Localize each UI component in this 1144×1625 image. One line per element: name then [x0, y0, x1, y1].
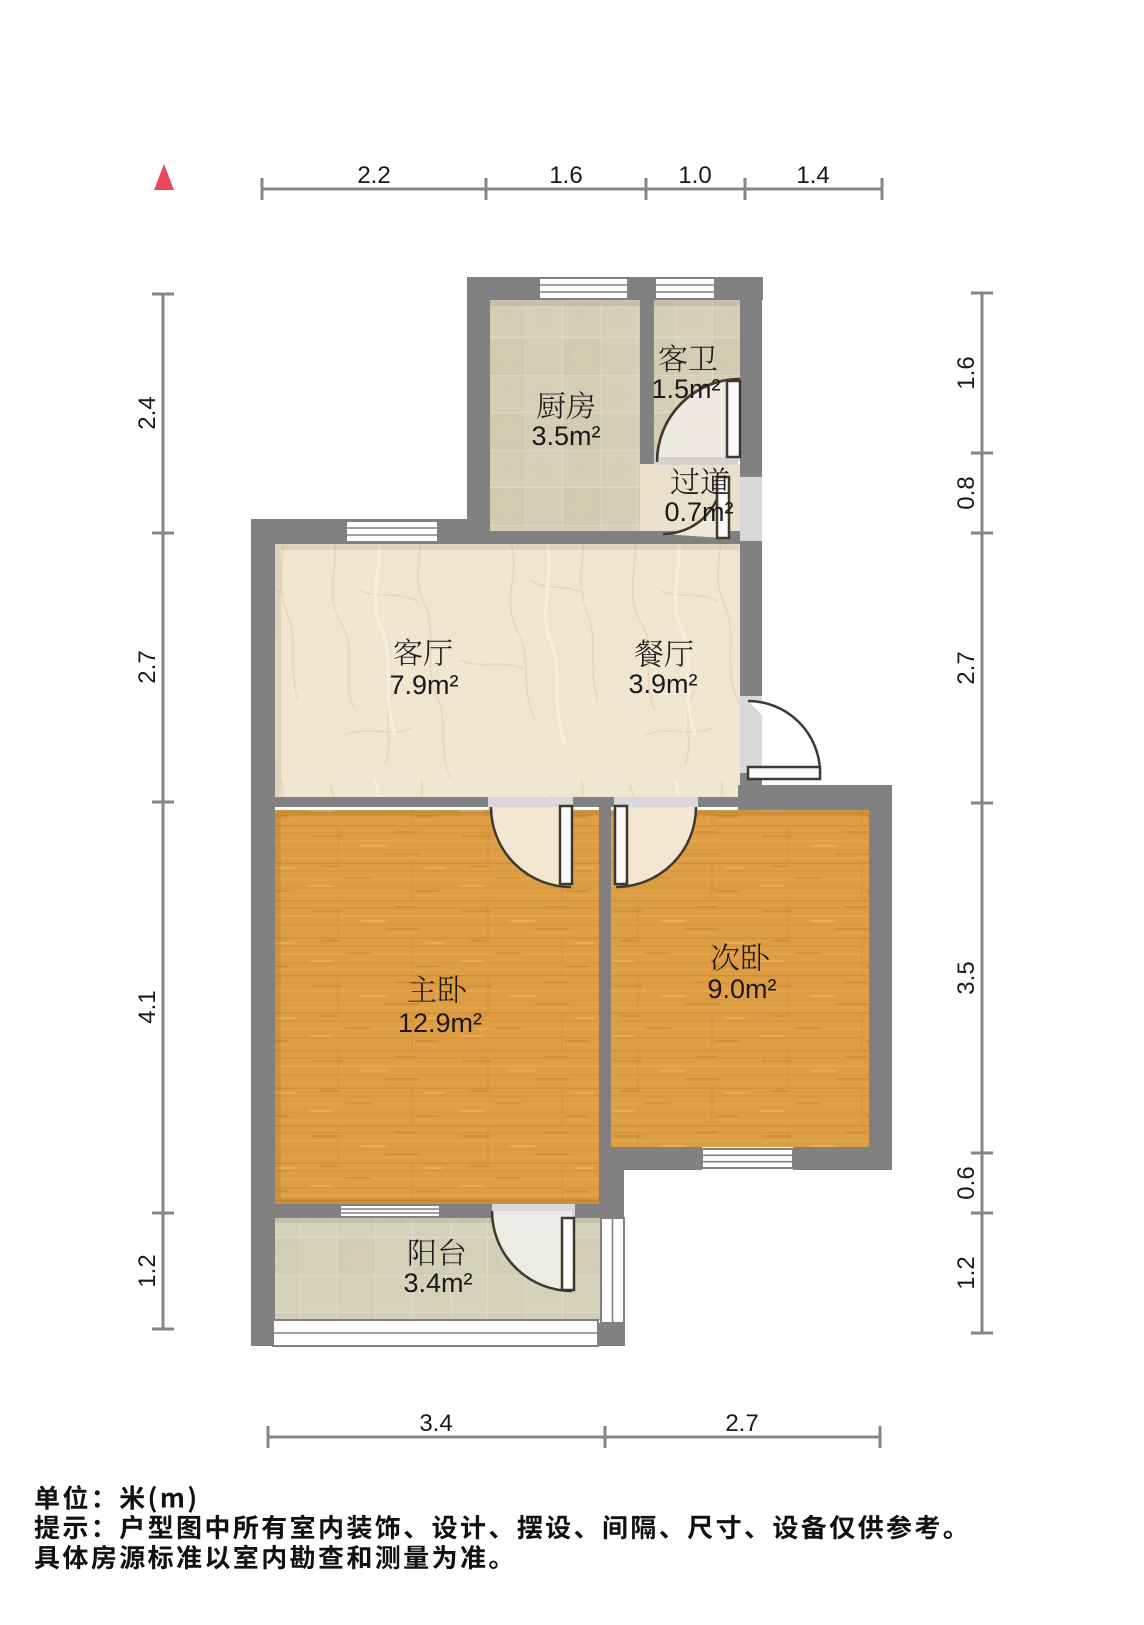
svg-text:1.4: 1.4	[796, 162, 829, 189]
svg-text:12.9m²: 12.9m²	[398, 1008, 482, 1038]
svg-text:1.2: 1.2	[134, 1254, 161, 1287]
svg-text:4.1: 4.1	[134, 990, 161, 1023]
svg-text:1.5m²: 1.5m²	[651, 374, 720, 404]
svg-text:0.8: 0.8	[953, 476, 980, 509]
svg-text:9.0m²: 9.0m²	[707, 974, 776, 1004]
svg-text:3.5m²: 3.5m²	[531, 421, 600, 451]
svg-text:2.7: 2.7	[725, 1410, 758, 1437]
svg-text:0.7m²: 0.7m²	[664, 497, 733, 527]
svg-text:1.2: 1.2	[953, 1256, 980, 1289]
svg-text:2.7: 2.7	[953, 651, 980, 684]
svg-text:0.6: 0.6	[953, 1166, 980, 1199]
svg-text:7.9m²: 7.9m²	[389, 670, 458, 700]
svg-text:2.7: 2.7	[134, 650, 161, 683]
svg-text:1.0: 1.0	[678, 162, 711, 189]
svg-text:2.4: 2.4	[134, 396, 161, 429]
svg-text:3.4m²: 3.4m²	[403, 1268, 472, 1298]
svg-text:3.9m²: 3.9m²	[628, 669, 697, 699]
svg-text:3.5: 3.5	[953, 961, 980, 994]
svg-text:3.4: 3.4	[419, 1410, 452, 1437]
svg-text:2.2: 2.2	[357, 162, 390, 189]
svg-text:1.6: 1.6	[953, 356, 980, 389]
svg-text:1.6: 1.6	[549, 162, 582, 189]
